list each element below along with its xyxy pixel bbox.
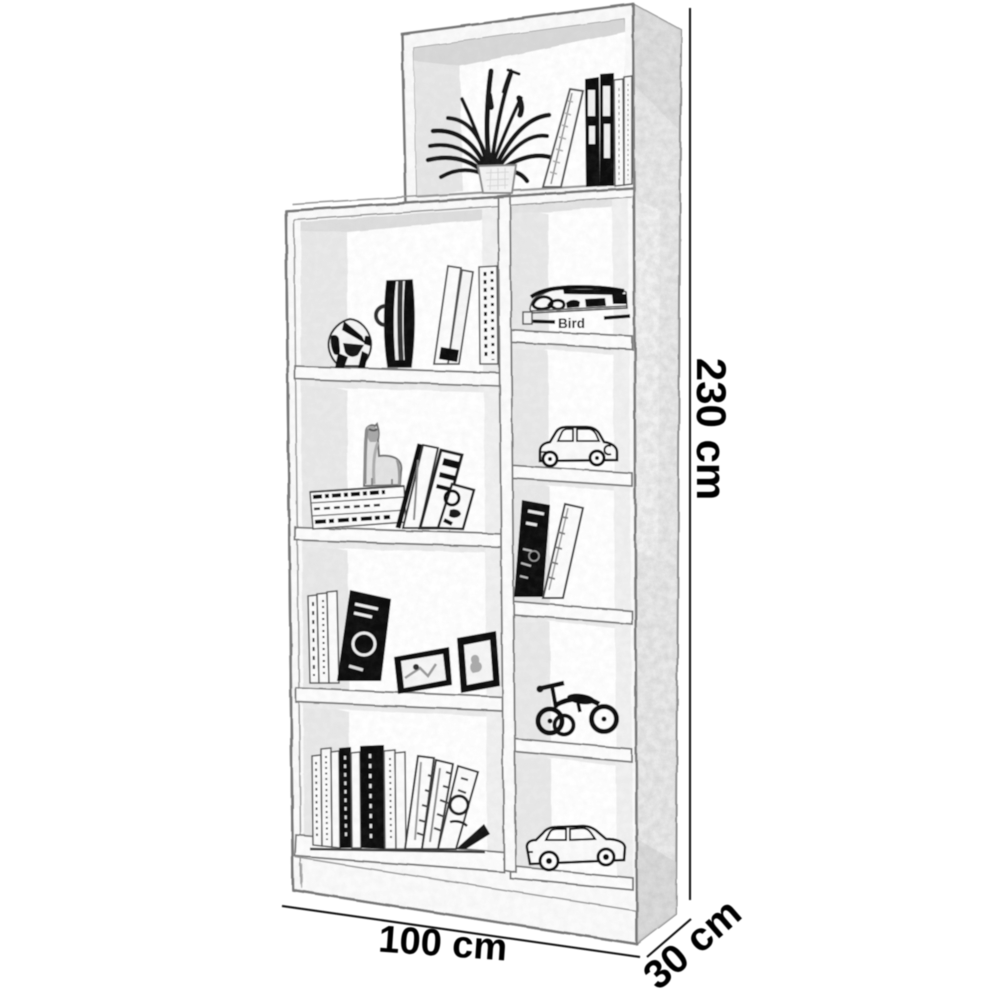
svg-text:230 cm: 230 cm [688,358,735,500]
svg-text:100 cm: 100 cm [377,919,509,970]
